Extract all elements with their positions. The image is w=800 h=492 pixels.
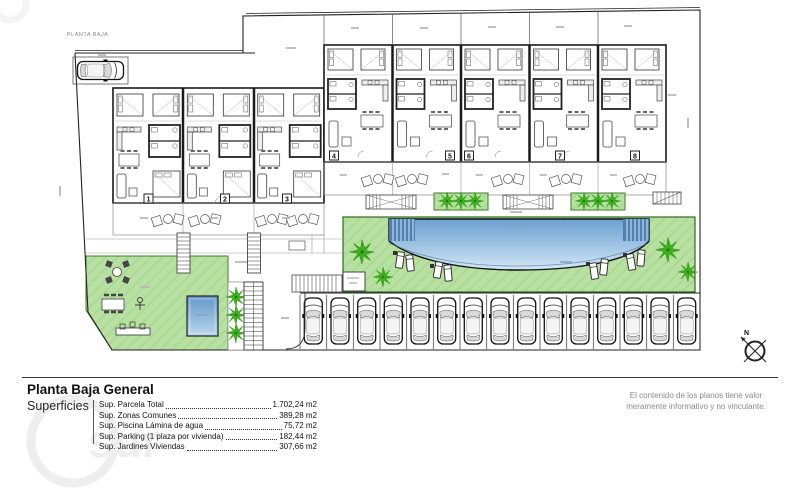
unit-6-badge: 6: [467, 153, 471, 160]
surface-value: 307,66 m2: [279, 442, 317, 453]
footer-divider: [22, 377, 778, 378]
dot-leader: [205, 429, 282, 430]
car-top-icon: [78, 60, 124, 82]
surface-label: Sup. Parking (1 plaza por vivienda): [99, 432, 224, 443]
footer-heading: Planta Baja General: [27, 382, 154, 397]
surface-value: 182,44 m2: [279, 432, 317, 443]
gate-box: [289, 241, 305, 250]
surface-list: Sup. Parcela Total1.702,24 m2 Sup. Zonas…: [99, 400, 317, 453]
superficies-separator: [93, 400, 94, 444]
kids-pool: [187, 296, 218, 336]
superficies-label: Superficies: [27, 399, 89, 413]
pool-tech-room: [343, 272, 365, 291]
pool-access-stair: [292, 275, 342, 292]
surface-value: 75,72 m2: [284, 421, 317, 432]
garden-palm-strip: [226, 282, 246, 350]
unit-8-badge: 8: [633, 153, 637, 160]
surface-row: Sup. Parcela Total1.702,24 m2: [99, 400, 317, 411]
unit-7-badge: 7: [558, 153, 562, 160]
floor-plan-canvas: 1 2 3 4 5 6 7 8 N: [0, 0, 800, 377]
surface-label: Sup. Parcela Total: [99, 400, 164, 411]
disclaimer-line-2: meramente informativo y no vinculante.: [610, 402, 782, 413]
unit-5-badge: 5: [448, 153, 452, 160]
dot-leader: [166, 408, 271, 409]
surface-row: Sup. Zonas Comunes389,28 m2: [99, 411, 317, 422]
disclaimer-text: El contenido de los planos tiene valor m…: [610, 391, 782, 412]
surface-value: 1.702,24 m2: [273, 400, 317, 411]
surface-row: Sup. Piscina Lámina de agua75,72 m2: [99, 421, 317, 432]
plan-sheet: PLANTA BAJA: [0, 0, 800, 492]
compass-label: N: [744, 330, 749, 337]
building-left: [113, 88, 324, 235]
garden-stair: [244, 282, 263, 350]
disclaimer-line-1: El contenido de los planos tiene valor: [610, 391, 782, 402]
dot-leader: [178, 418, 277, 419]
unit-1-badge: 1: [147, 196, 151, 203]
surface-row: Sup. Jardines Viviendas307,66 m2: [99, 442, 317, 453]
surface-row: Sup. Parking (1 plaza por vivienda)182,4…: [99, 432, 317, 443]
dot-leader: [226, 439, 278, 440]
surface-value: 389,28 m2: [279, 411, 317, 422]
parking-row: [286, 293, 700, 349]
dot-leader: [187, 450, 278, 451]
surface-label: Sup. Piscina Lámina de agua: [99, 421, 203, 432]
surface-label: Sup. Jardines Viviendas: [99, 442, 185, 453]
unit-2-badge: 2: [223, 196, 227, 203]
walkway-lines: [86, 235, 345, 253]
terrace-stairs: [366, 192, 681, 209]
walkway-stair-right: [248, 233, 261, 273]
building-right: [324, 11, 666, 195]
north-arrow-icon: N: [741, 330, 766, 362]
unit-4-badge: 4: [332, 153, 336, 160]
visitor-parking-stall: [73, 57, 128, 84]
unit-3-badge: 3: [285, 196, 289, 203]
walkway-stair-left: [177, 233, 190, 273]
surface-label: Sup. Zonas Comunes: [99, 411, 176, 422]
